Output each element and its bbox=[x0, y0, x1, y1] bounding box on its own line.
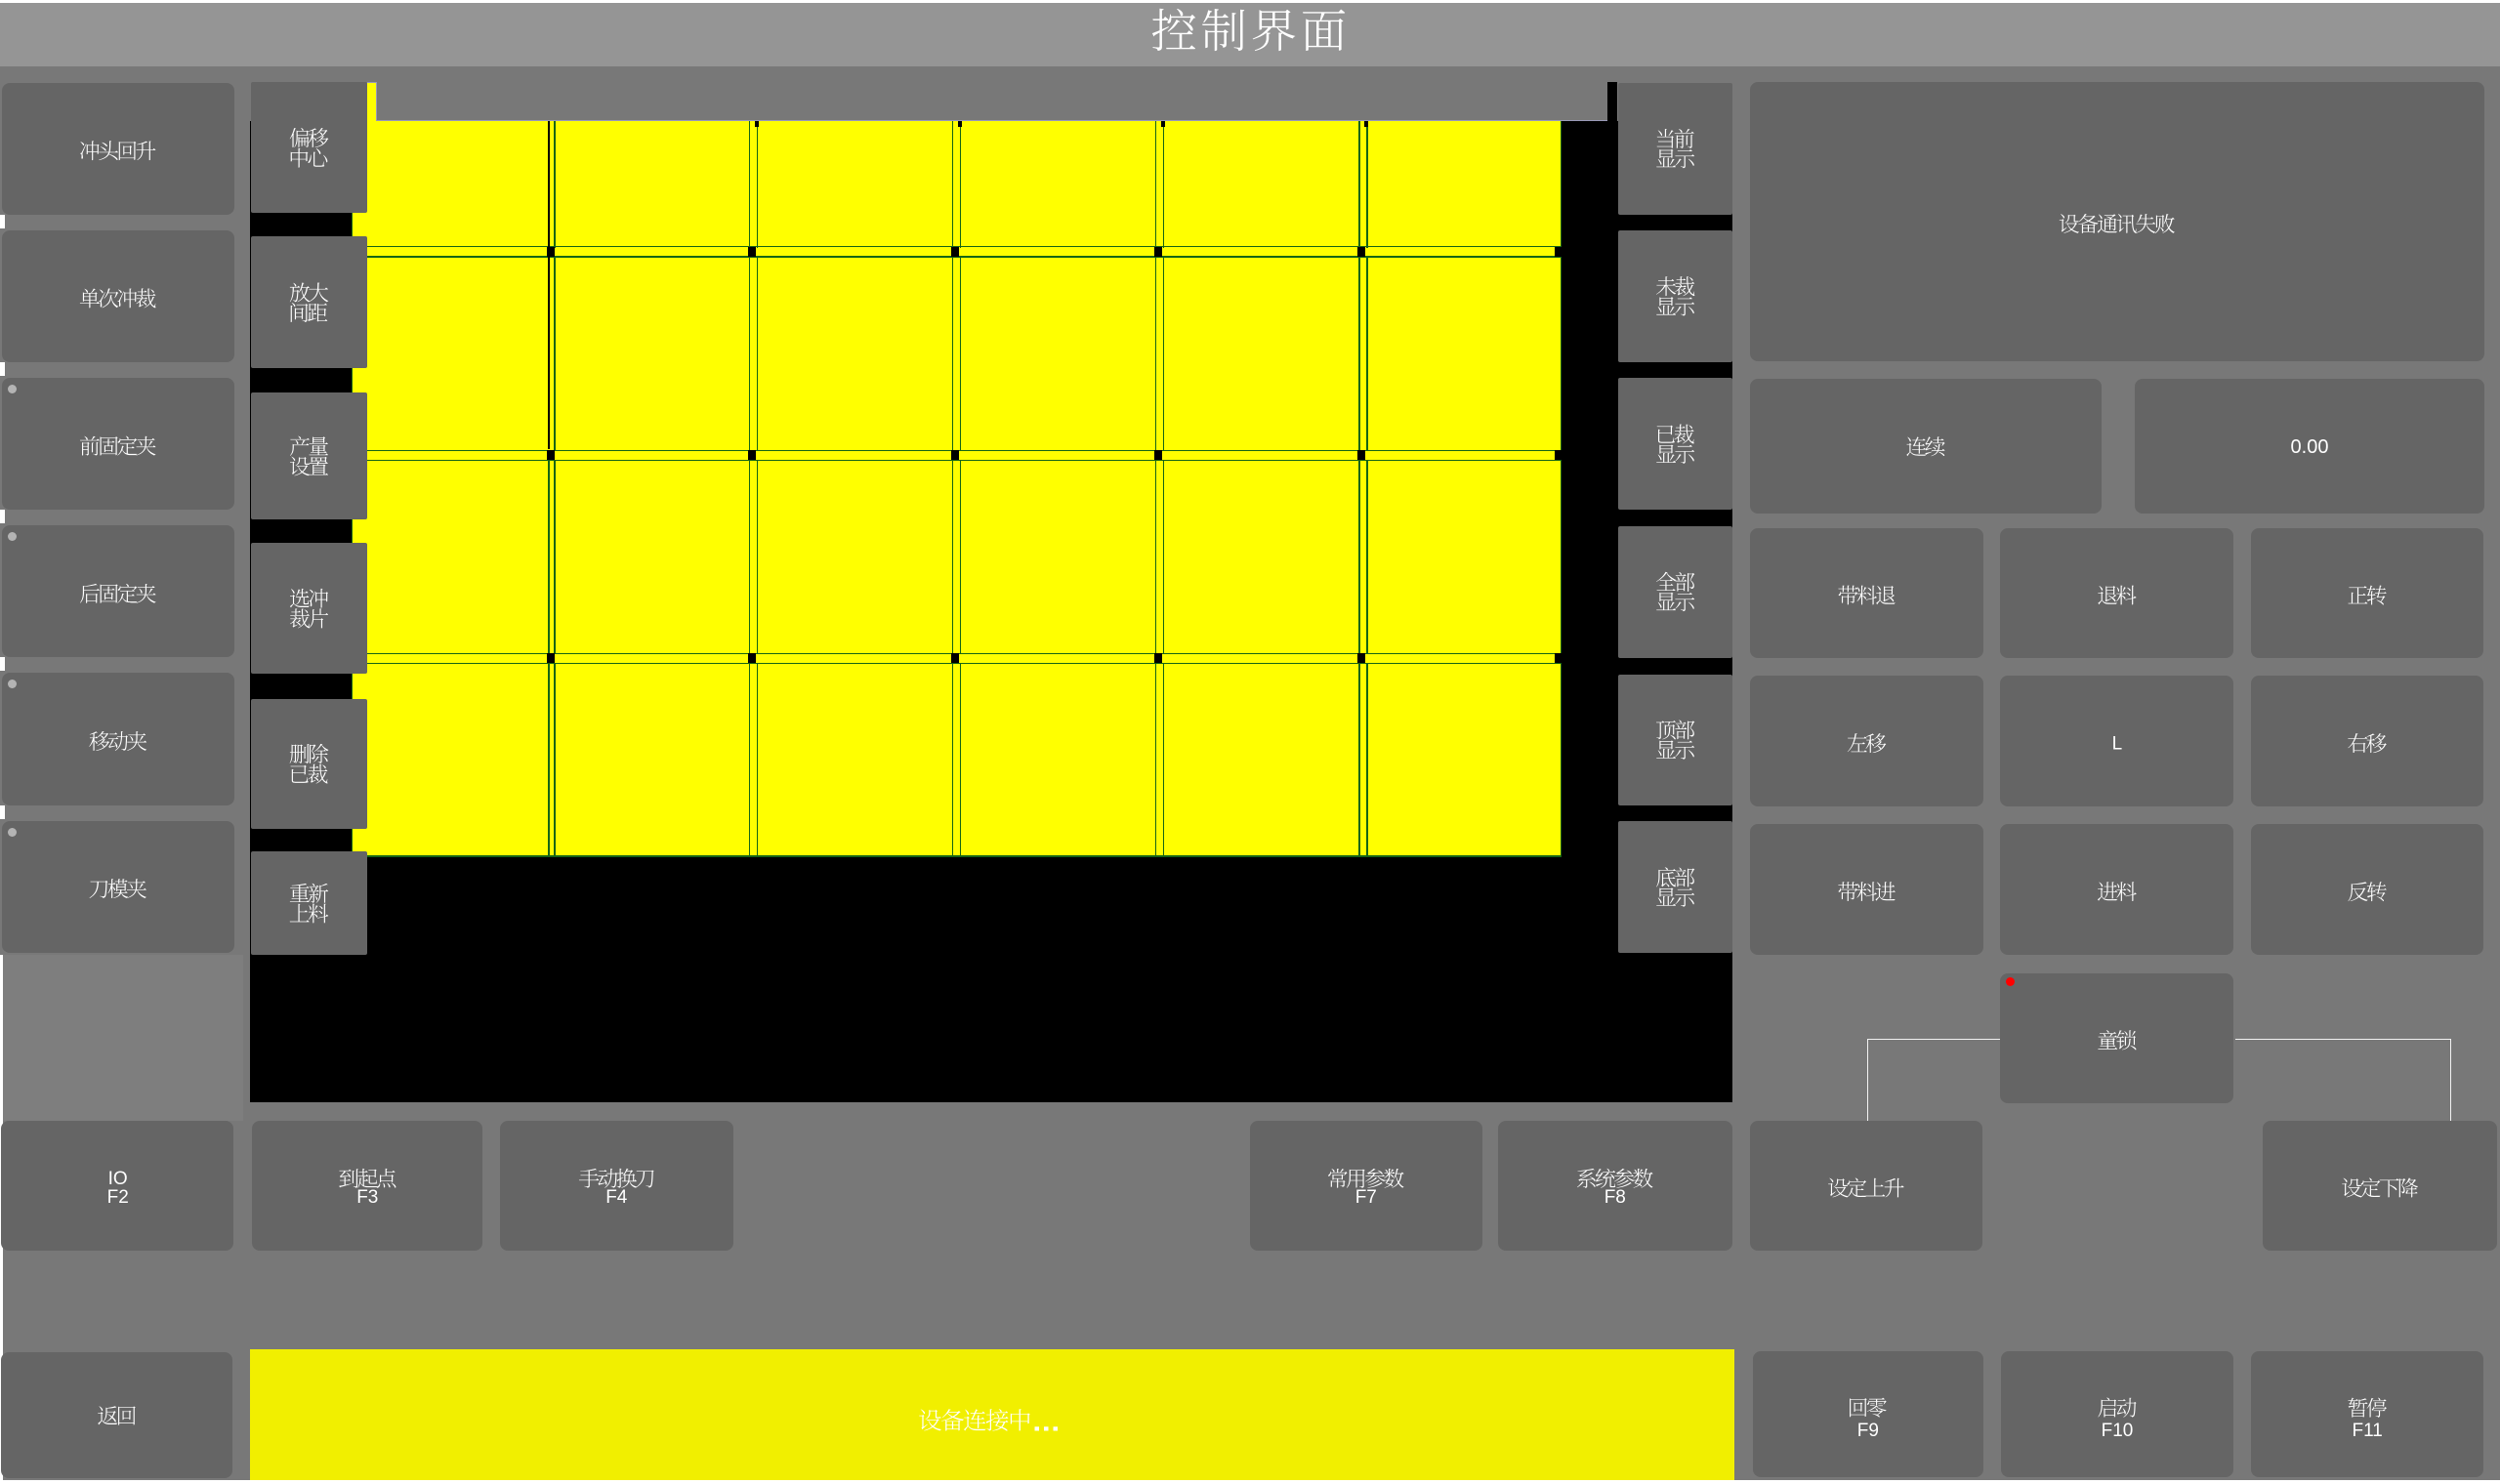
svg-text:F8: F8 bbox=[1604, 1187, 1626, 1208]
svg-text:F3: F3 bbox=[356, 1187, 378, 1208]
svg-text:F4: F4 bbox=[605, 1187, 628, 1208]
svg-text:F2: F2 bbox=[107, 1187, 129, 1208]
svg-text:F10: F10 bbox=[2102, 1421, 2134, 1441]
svg-text:F11: F11 bbox=[2353, 1421, 2383, 1441]
svg-text:IO: IO bbox=[108, 1169, 128, 1189]
svg-text:L: L bbox=[2112, 734, 2123, 755]
svg-text:0.00: 0.00 bbox=[2291, 436, 2329, 458]
svg-text:F7: F7 bbox=[1355, 1187, 1377, 1208]
svg-text:F9: F9 bbox=[1857, 1421, 1879, 1441]
